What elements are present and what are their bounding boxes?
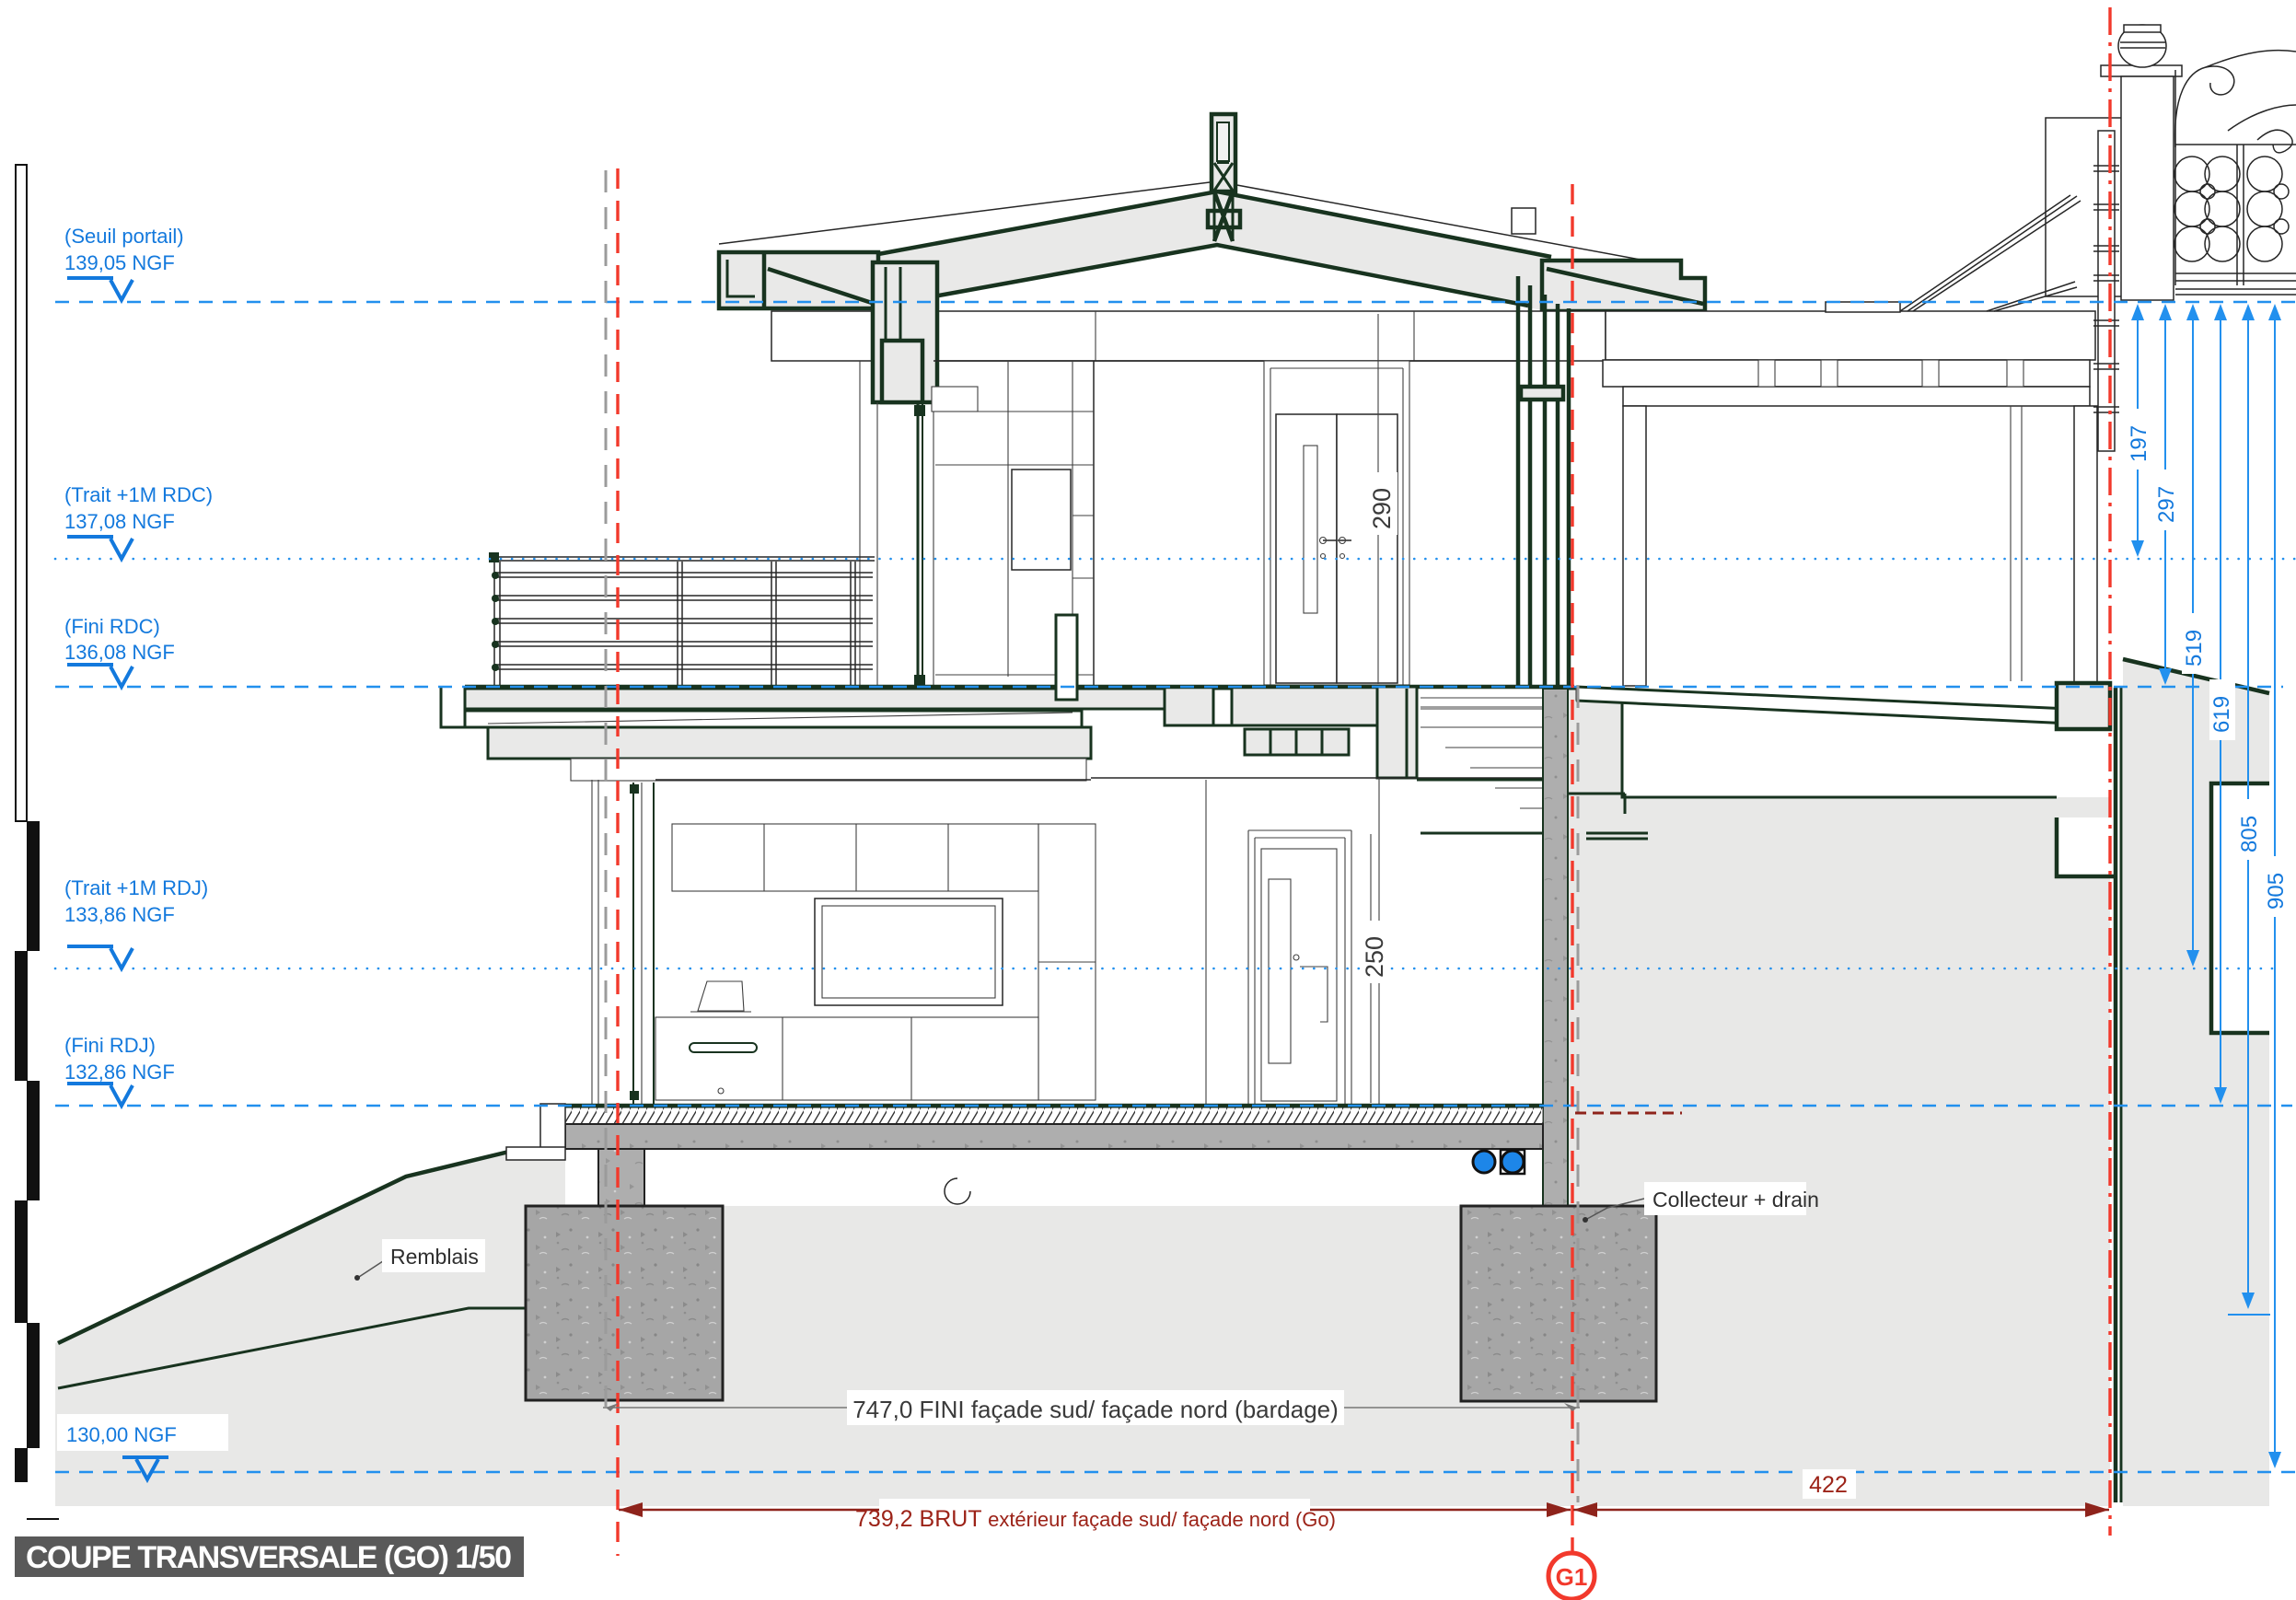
- svg-text:G1: G1: [1556, 1563, 1588, 1591]
- svg-text:(Fini RDJ): (Fini RDJ): [64, 1034, 156, 1057]
- svg-text:905: 905: [2264, 873, 2289, 910]
- svg-text:747,0 FINI façade sud/ façade: 747,0 FINI façade sud/ façade nord (bard…: [852, 1396, 1339, 1423]
- svg-text:136,08 NGF: 136,08 NGF: [64, 641, 175, 664]
- svg-text:Collecteur + drain: Collecteur + drain: [1652, 1188, 1819, 1212]
- svg-text:133,86 NGF: 133,86 NGF: [64, 903, 175, 926]
- svg-text:(Trait +1M RDC): (Trait +1M RDC): [64, 483, 213, 506]
- svg-text:290: 290: [1368, 488, 1396, 529]
- svg-text:(Fini RDC): (Fini RDC): [64, 615, 160, 638]
- svg-text:619: 619: [2209, 696, 2234, 733]
- svg-text:COUPE TRANSVERSALE (GO) 1/50: COUPE TRANSVERSALE (GO) 1/50: [26, 1540, 512, 1575]
- svg-text:(Seuil portail): (Seuil portail): [64, 225, 184, 248]
- svg-text:739,2 BRUT extérieur façade su: 739,2 BRUT extérieur façade sud/ façade …: [855, 1506, 1336, 1532]
- svg-text:250: 250: [1361, 936, 1388, 978]
- svg-text:805: 805: [2237, 816, 2262, 852]
- svg-text:130,00 NGF: 130,00 NGF: [66, 1423, 177, 1446]
- svg-text:(Trait +1M RDJ): (Trait +1M RDJ): [64, 876, 208, 899]
- svg-text:519: 519: [2182, 630, 2207, 667]
- svg-text:422: 422: [1809, 1472, 1848, 1498]
- svg-text:137,08 NGF: 137,08 NGF: [64, 510, 175, 533]
- svg-text:297: 297: [2154, 486, 2179, 523]
- svg-text:Remblais: Remblais: [390, 1245, 479, 1269]
- svg-text:132,86 NGF: 132,86 NGF: [64, 1061, 175, 1084]
- svg-text:197: 197: [2127, 425, 2151, 462]
- svg-text:139,05 NGF: 139,05 NGF: [64, 251, 175, 274]
